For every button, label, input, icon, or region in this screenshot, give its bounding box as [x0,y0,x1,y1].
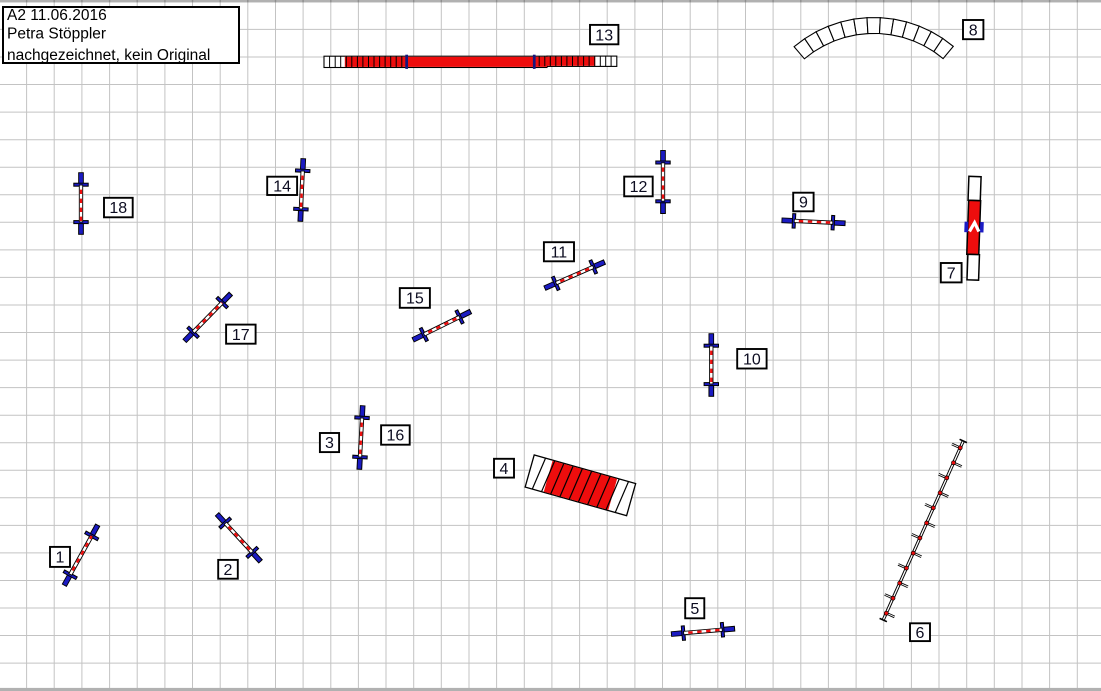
svg-text:12: 12 [630,179,648,196]
svg-text:8: 8 [969,22,978,39]
svg-text:6: 6 [916,625,925,642]
svg-text:4: 4 [500,461,509,478]
svg-text:1: 1 [56,550,65,567]
svg-text:15: 15 [406,291,424,308]
svg-text:7: 7 [947,265,956,282]
svg-text:3: 3 [325,435,334,452]
svg-text:13: 13 [595,27,613,44]
svg-text:A2 11.06.2016: A2 11.06.2016 [7,7,107,24]
svg-text:14: 14 [273,179,291,196]
svg-text:16: 16 [387,428,405,445]
svg-text:5: 5 [690,601,699,618]
svg-text:Petra Stöppler: Petra Stöppler [7,25,106,42]
svg-text:11: 11 [551,244,568,261]
svg-text:17: 17 [232,327,250,344]
svg-text:2: 2 [224,562,233,579]
svg-text:9: 9 [799,195,808,212]
svg-text:18: 18 [109,200,127,217]
svg-text:nachgezeichnet, kein Original: nachgezeichnet, kein Original [7,47,210,64]
svg-text:10: 10 [743,351,761,368]
